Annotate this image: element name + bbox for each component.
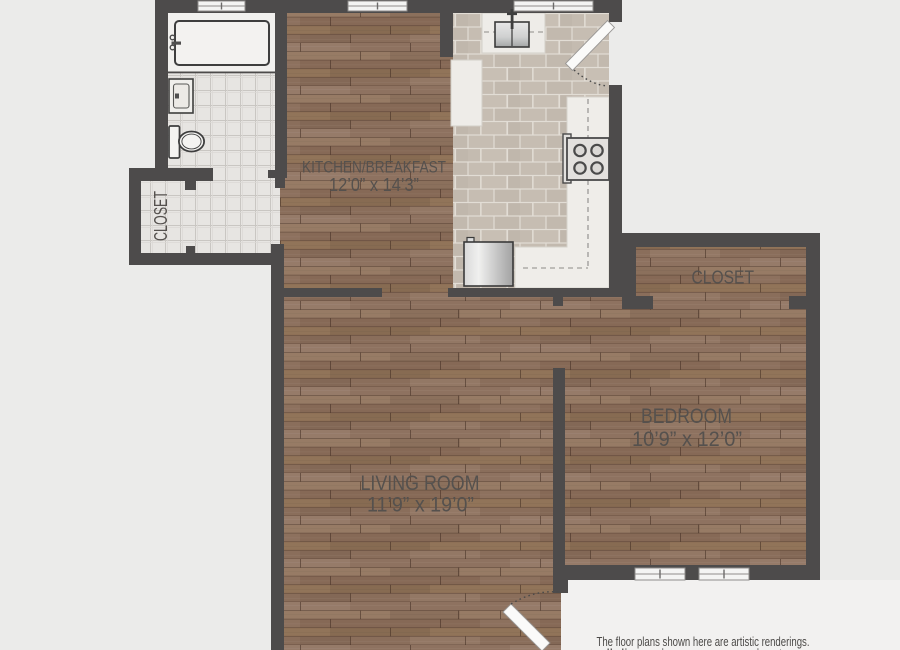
svg-text:KITCHEN/BREAKFAST: KITCHEN/BREAKFAST <box>302 159 446 177</box>
svg-text:CLOSET: CLOSET <box>150 191 171 241</box>
svg-text:12’0” x 14’3”: 12’0” x 14’3” <box>329 175 419 195</box>
svg-text:10’9” x 12’0”: 10’9” x 12’0” <box>632 428 742 451</box>
svg-text:BEDROOM: BEDROOM <box>641 405 732 428</box>
svg-text:all dimensions are approximate: all dimensions are approximate. <box>599 646 794 650</box>
svg-text:11’9” x 19’0”: 11’9” x 19’0” <box>367 494 474 517</box>
svg-text:LIVING ROOM: LIVING ROOM <box>361 472 480 495</box>
svg-text:CLOSET: CLOSET <box>692 267 755 288</box>
